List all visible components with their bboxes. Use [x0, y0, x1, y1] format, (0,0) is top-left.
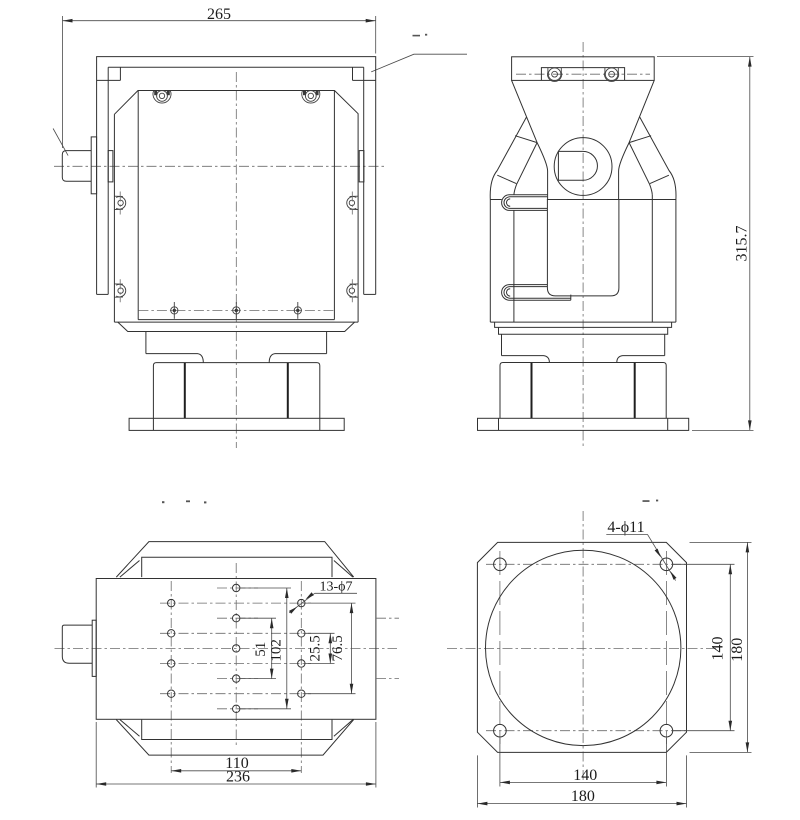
- svg-text:140: 140: [573, 767, 597, 784]
- svg-text:180: 180: [571, 788, 595, 805]
- svg-text:13-ϕ7: 13-ϕ7: [319, 580, 352, 595]
- svg-text:140: 140: [710, 637, 727, 661]
- svg-text:4-ϕ11: 4-ϕ11: [607, 519, 644, 536]
- svg-text:76.5: 76.5: [330, 635, 346, 661]
- svg-text:236: 236: [226, 769, 250, 786]
- svg-text:51: 51: [253, 642, 269, 657]
- svg-text:315.7: 315.7: [733, 226, 750, 262]
- svg-text:102: 102: [268, 639, 284, 662]
- svg-text:25.5: 25.5: [308, 635, 324, 661]
- svg-text:180: 180: [729, 638, 746, 662]
